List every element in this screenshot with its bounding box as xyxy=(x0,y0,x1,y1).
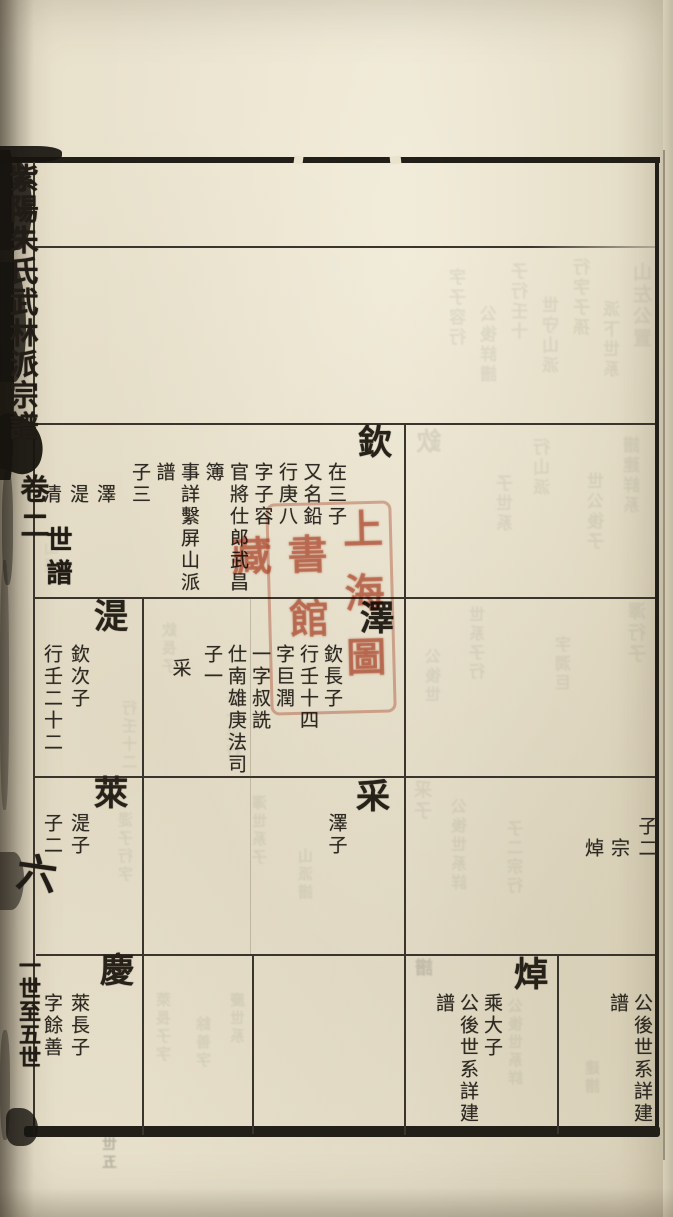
person-details-lai: 湜子 子二 xyxy=(38,813,92,923)
person-name-qin: 欽 xyxy=(358,426,392,460)
person-name-cai: 采 xyxy=(356,780,390,814)
person-sons-qin: 澤 湜 清 xyxy=(37,484,118,524)
person-name-shi: 湜 xyxy=(94,600,128,634)
person-details-shi: 欽次子 行壬二十二 xyxy=(38,644,92,779)
person-details-cai: 澤子 xyxy=(324,813,349,893)
person-details-zhuo: 乘大子 公後世系詳建 譜 xyxy=(432,993,504,1141)
person-name-qing: 慶 xyxy=(100,954,134,988)
collection-seal: 上海圖 書館藏 xyxy=(265,500,397,715)
lineage-note: 公後世系詳建 譜 xyxy=(606,993,654,1141)
person-name-zhuo: 焯 xyxy=(514,958,548,992)
person-name-lai: 萊 xyxy=(94,777,128,811)
person-sons-ze: 采 xyxy=(168,658,193,698)
seal-text-right: 上海圖 xyxy=(330,508,391,707)
heirs-note: 子二 xyxy=(634,816,659,876)
person-details-qing: 萊長子 字餘善 xyxy=(38,993,92,1103)
seal-text-left: 書館藏 xyxy=(218,509,335,710)
heirs-names: 宗 焯 xyxy=(580,838,632,868)
genealogy-page: 山左公置派下世系行字子孫世守山派子行壬十公後詳譜字子容行欽譜建詳系世公後子行山派… xyxy=(0,0,673,1217)
